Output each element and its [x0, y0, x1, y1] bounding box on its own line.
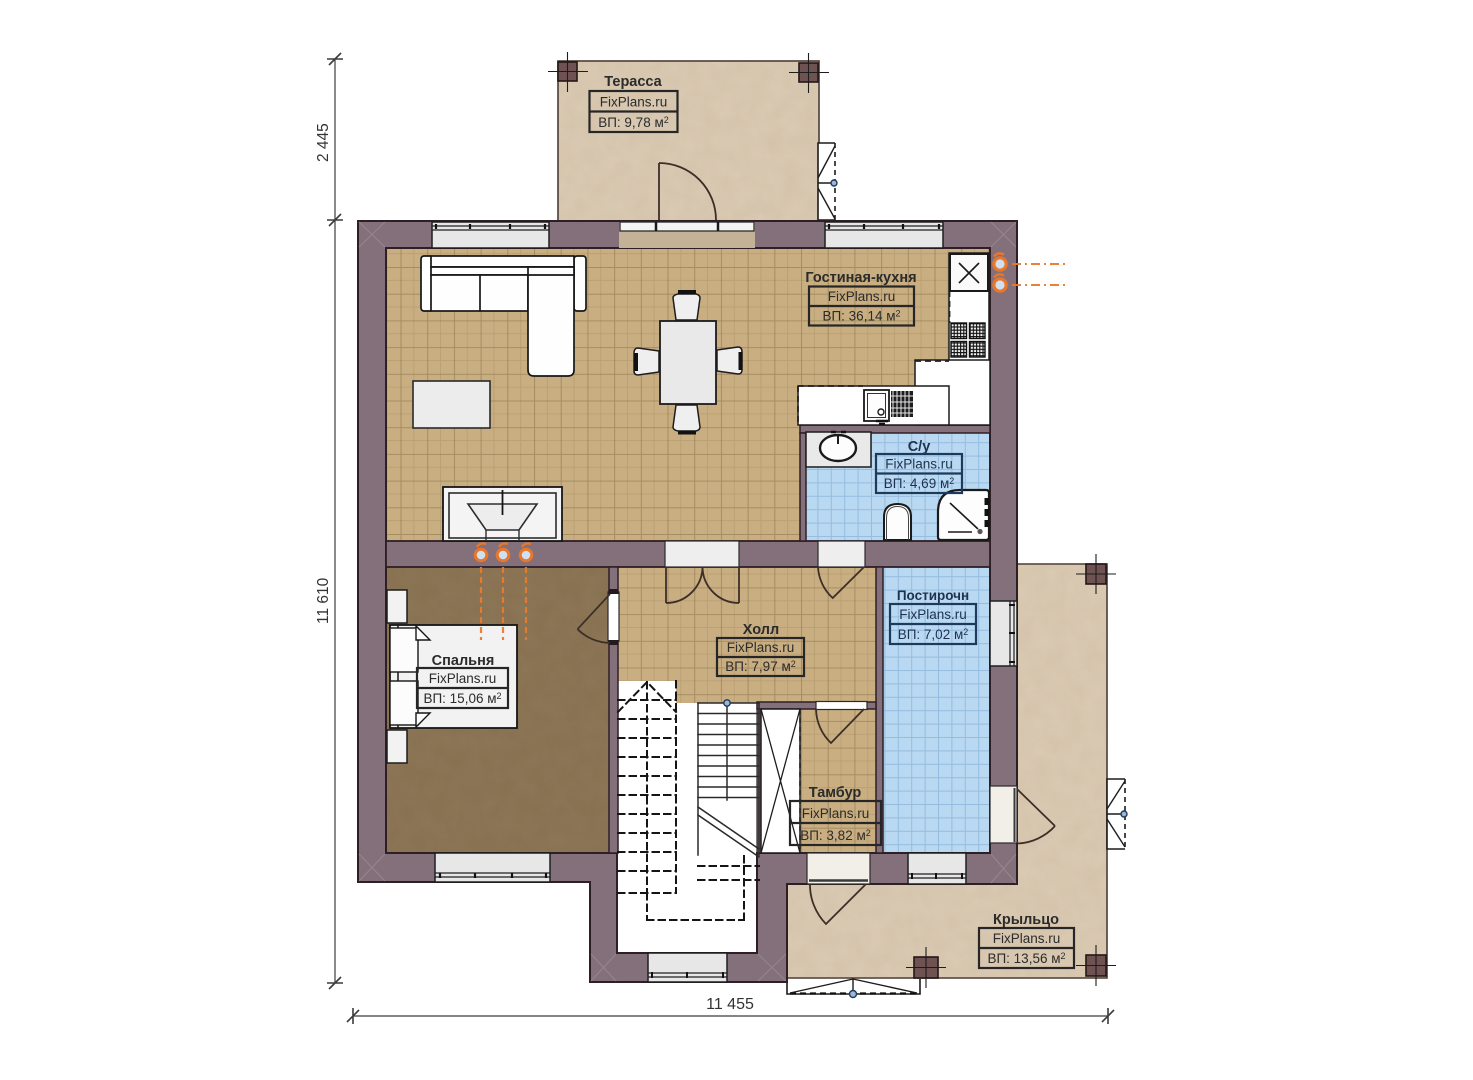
- svg-text:FixPlans.ru: FixPlans.ru: [802, 806, 870, 821]
- svg-text:ВП: 15,06 м2: ВП: 15,06 м2: [423, 691, 501, 706]
- svg-text:FixPlans.ru: FixPlans.ru: [899, 607, 967, 622]
- svg-text:11 610: 11 610: [315, 577, 332, 624]
- svg-text:ВП: 7,02 м2: ВП: 7,02 м2: [898, 627, 969, 642]
- svg-text:ВП: 36,14 м2: ВП: 36,14 м2: [822, 309, 900, 324]
- svg-text:ВП: 3,82 м2: ВП: 3,82 м2: [800, 828, 871, 843]
- svg-text:С/у: С/у: [908, 439, 931, 455]
- svg-text:11 455: 11 455: [706, 996, 754, 1013]
- svg-text:FixPlans.ru: FixPlans.ru: [828, 289, 896, 304]
- svg-text:2 445: 2 445: [315, 123, 332, 162]
- svg-text:Спальня: Спальня: [432, 653, 495, 669]
- svg-text:FixPlans.ru: FixPlans.ru: [600, 95, 668, 110]
- svg-text:ВП: 9,78 м2: ВП: 9,78 м2: [598, 115, 669, 130]
- svg-text:Тамбур: Тамбур: [809, 785, 862, 801]
- svg-text:FixPlans.ru: FixPlans.ru: [993, 931, 1061, 946]
- svg-text:FixPlans.ru: FixPlans.ru: [727, 640, 795, 655]
- svg-text:Холл: Холл: [743, 622, 779, 638]
- svg-text:FixPlans.ru: FixPlans.ru: [429, 671, 497, 686]
- svg-text:ВП: 7,97 м2: ВП: 7,97 м2: [725, 659, 796, 674]
- svg-text:Гостиная-кухня: Гостиная-кухня: [805, 270, 916, 286]
- svg-text:FixPlans.ru: FixPlans.ru: [885, 457, 953, 472]
- svg-text:Постирочн: Постирочн: [897, 588, 969, 603]
- svg-text:ВП: 13,56 м2: ВП: 13,56 м2: [987, 951, 1065, 966]
- svg-text:Терасса: Терасса: [604, 74, 662, 90]
- svg-text:Крыльцо: Крыльцо: [993, 912, 1059, 928]
- svg-text:ВП: 4,69 м2: ВП: 4,69 м2: [884, 476, 955, 491]
